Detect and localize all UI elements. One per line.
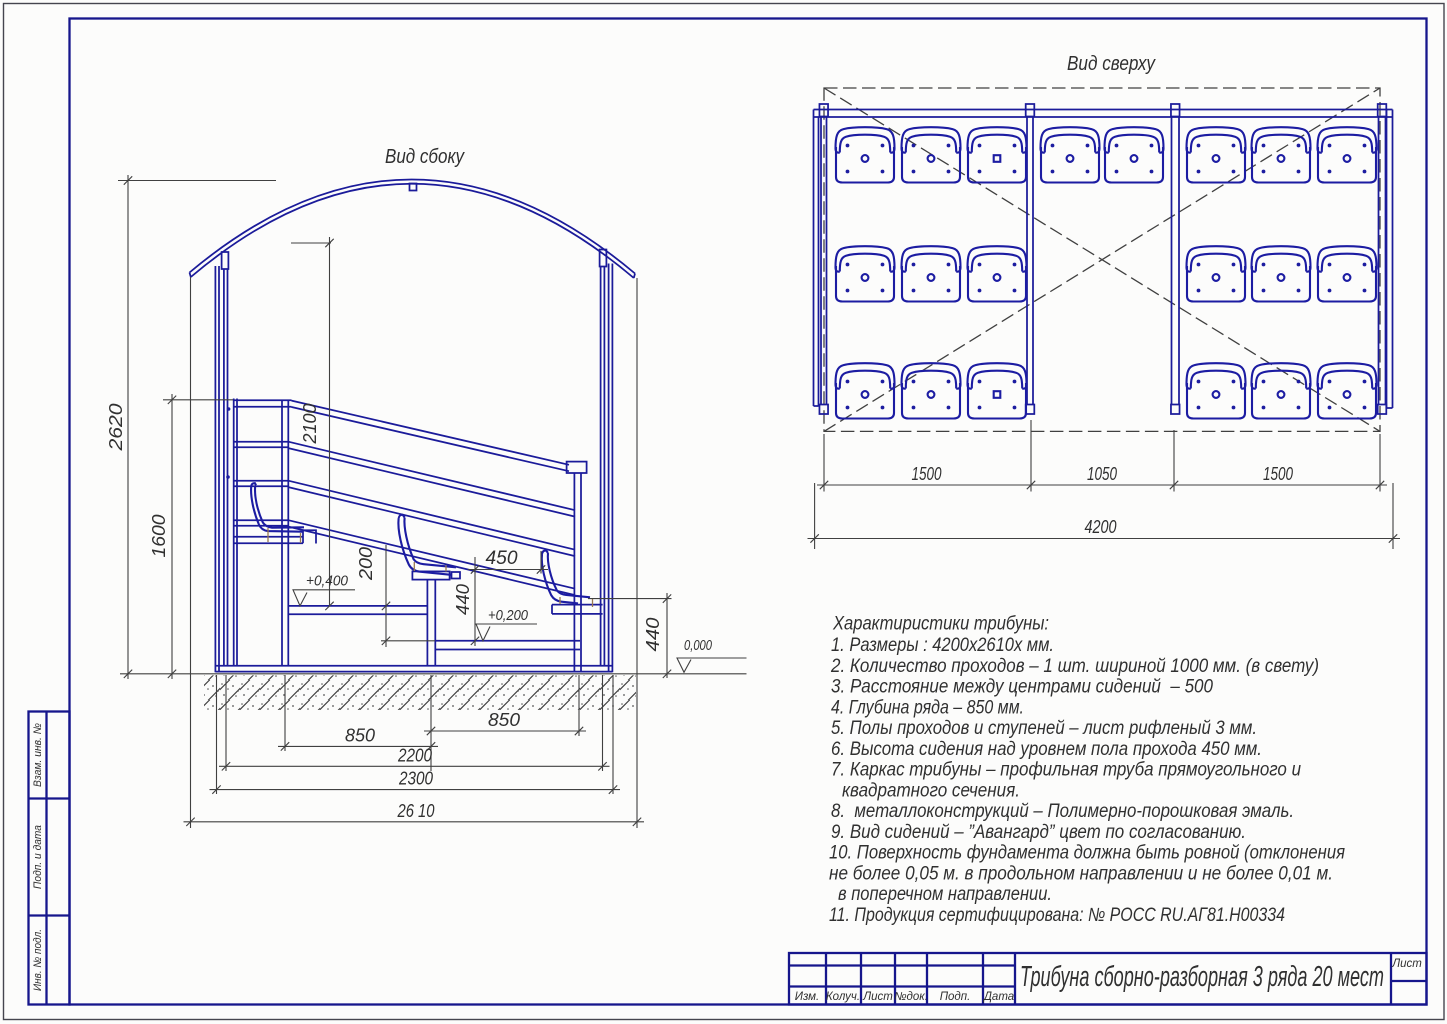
svg-text:2. Количество проходов – 1 шт.: 2. Количество проходов – 1 шт. шириной 1… — [830, 656, 1319, 677]
svg-text:0,000: 0,000 — [684, 638, 712, 654]
svg-text:Колуч.: Колуч. — [826, 991, 860, 1003]
svg-text:в поперечном направлении.: в поперечном направлении. — [838, 884, 1052, 905]
svg-text:200: 200 — [356, 547, 376, 581]
svg-text:8. металлоконструкций – Полим: 8. металлоконструкций – Полимерно-порошк… — [831, 801, 1294, 822]
svg-text:11. Продукция сертифицирована:: 11. Продукция сертифицирована: № РОСС RU… — [829, 905, 1285, 926]
svg-text:Подп.: Подп. — [940, 991, 971, 1003]
svg-text:7. Каркас трибуны – профильная: 7. Каркас трибуны – профильная труба пря… — [831, 760, 1301, 781]
svg-text:2300: 2300 — [398, 769, 433, 789]
svg-text:Лист: Лист — [1391, 958, 1422, 970]
svg-text:5. Полы проходов и ступеней –: 5. Полы проходов и ступеней – лист рифле… — [831, 718, 1257, 739]
svg-text:440: 440 — [643, 618, 663, 652]
svg-text:Подп. и дата: Подп. и дата — [32, 825, 44, 889]
svg-text:Характиристики трибуны:: Характиристики трибуны: — [832, 614, 1049, 635]
svg-text:Изм.: Изм. — [795, 991, 820, 1003]
svg-text:+0,200: +0,200 — [488, 608, 528, 624]
svg-text:4200: 4200 — [1085, 517, 1117, 537]
svg-text:Лист: Лист — [862, 991, 893, 1003]
svg-text:Вид сбоку: Вид сбоку — [385, 146, 465, 168]
svg-text:26 10: 26 10 — [397, 801, 435, 821]
svg-text:850: 850 — [345, 726, 375, 746]
svg-text:Вид сверху: Вид сверху — [1067, 53, 1156, 75]
svg-text:2620: 2620 — [106, 404, 126, 452]
svg-text:Дата: Дата — [982, 991, 1014, 1003]
svg-text:+0,400: +0,400 — [306, 574, 348, 590]
svg-text:2100: 2100 — [300, 404, 320, 445]
svg-text:450: 450 — [486, 548, 518, 569]
svg-text:1. Размеры : 4200х2610х мм.: 1. Размеры : 4200х2610х мм. — [831, 635, 1054, 656]
svg-text:1600: 1600 — [149, 515, 169, 558]
svg-text:Трибуна сборно-разборная 3 ряд: Трибуна сборно-разборная 3 ряда 20 мест — [1020, 961, 1384, 993]
svg-text:Инв. № подл.: Инв. № подл. — [32, 929, 44, 991]
svg-text:не более 0,05 м. в продольном: не более 0,05 м. в продольном направлени… — [829, 864, 1333, 885]
svg-text:№док.: №док. — [894, 991, 928, 1003]
svg-text:квадратного сечения.: квадратного сечения. — [842, 781, 1020, 802]
svg-text:10. Поверхность фундамента дол: 10. Поверхность фундамента должна быть р… — [829, 843, 1345, 864]
svg-text:1500: 1500 — [1263, 464, 1293, 484]
svg-text:3. Расстояние между центрами с: 3. Расстояние между центрами сидений – 5… — [831, 677, 1213, 698]
svg-text:Взам. инв. №: Взам. инв. № — [32, 723, 44, 787]
svg-text:9. Вид сидений – ”Авангард” цв: 9. Вид сидений – ”Авангард” цвет по согл… — [831, 822, 1246, 843]
svg-text:6. Высота сидения над уровнем: 6. Высота сидения над уровнем пола прохо… — [831, 739, 1262, 760]
svg-text:1500: 1500 — [912, 464, 942, 484]
svg-text:440: 440 — [453, 584, 473, 615]
svg-text:2200: 2200 — [397, 746, 432, 766]
svg-text:1050: 1050 — [1087, 464, 1117, 484]
svg-text:850: 850 — [488, 710, 520, 730]
svg-text:4. Глубина ряда – 850 мм.: 4. Глубина ряда – 850 мм. — [831, 698, 1024, 719]
